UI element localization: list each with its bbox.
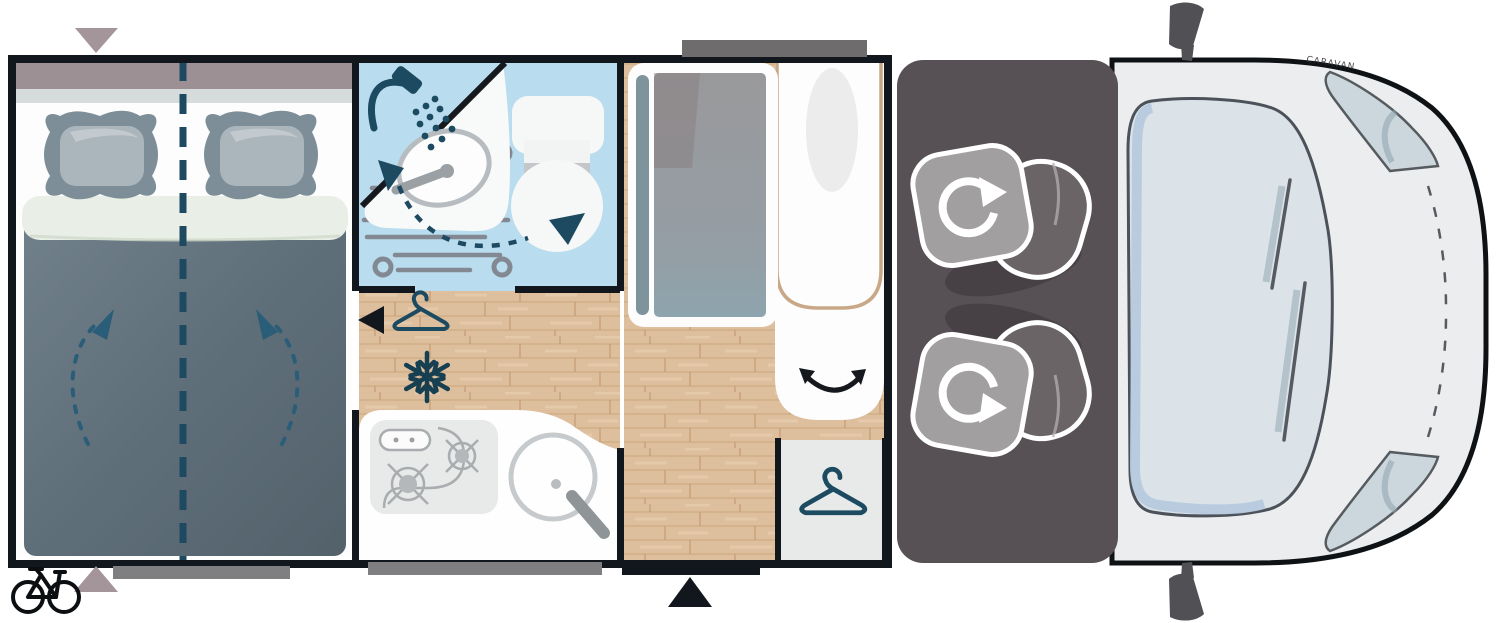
pillow-right	[204, 111, 318, 200]
habitation	[12, 59, 888, 564]
closet	[775, 438, 888, 562]
bike-rack-icon	[13, 569, 79, 612]
stove	[370, 420, 498, 514]
window-bar-kitchen	[368, 562, 602, 575]
floorplan-canvas: CARAVAN	[0, 0, 1500, 623]
bed-marker-arrow-bottom-icon	[74, 566, 118, 592]
vehicle-front: CARAVAN	[1112, 2, 1486, 620]
entry-door-bar	[622, 560, 760, 575]
cab	[897, 60, 1118, 563]
wardrobe-cabinet	[628, 63, 778, 327]
bed-marker-arrow-top-icon	[75, 28, 118, 53]
bedroom	[14, 61, 352, 560]
pillow-left	[44, 111, 158, 200]
floorplan-svg: CARAVAN	[0, 0, 1500, 623]
entry-step-arrow-icon	[668, 577, 712, 607]
window-bar-bedroom	[113, 566, 290, 579]
roof-window-bar	[682, 40, 867, 57]
